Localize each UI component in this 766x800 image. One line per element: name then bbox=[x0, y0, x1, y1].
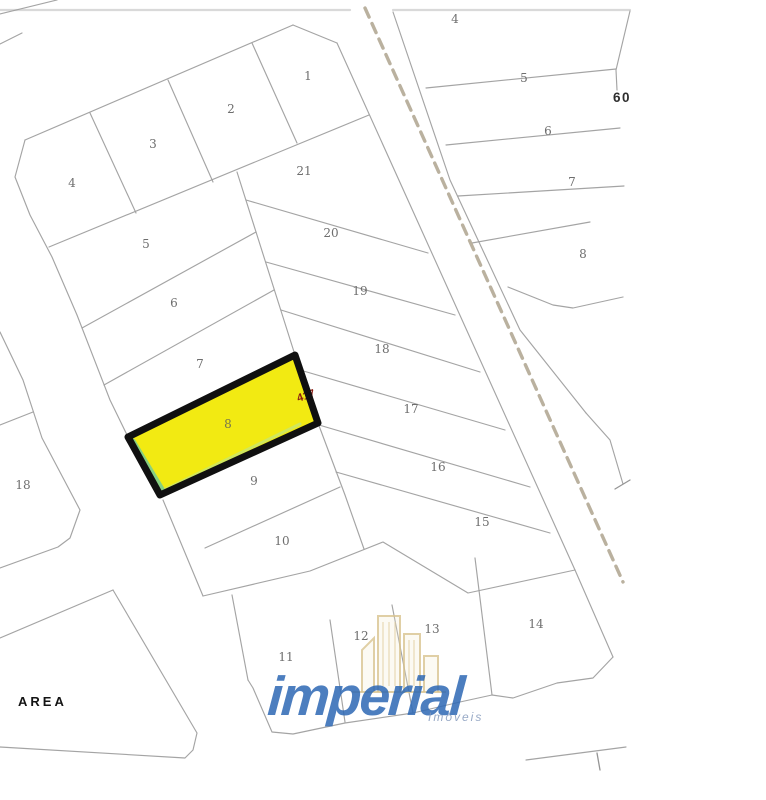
parcel-label-8: 8 bbox=[579, 247, 587, 261]
parcel-label-19: 19 bbox=[352, 284, 367, 298]
parcel-label-7: 7 bbox=[568, 175, 576, 189]
rb-division-7-8 bbox=[472, 222, 590, 243]
division-11-12 bbox=[330, 620, 345, 722]
plat-map-drawing: 4171234215206197188179161015181112131445… bbox=[0, 0, 766, 800]
rb-division-6-7 bbox=[458, 186, 624, 196]
lot11-west-edge bbox=[232, 595, 248, 680]
road-dashed-centerline bbox=[365, 8, 623, 582]
parcel-label-11: 11 bbox=[278, 650, 293, 664]
area-parcel-boundary bbox=[0, 590, 197, 758]
division-3-4 bbox=[90, 113, 136, 213]
parcel-label-18: 18 bbox=[15, 478, 30, 492]
rb-lot8-bottom bbox=[508, 287, 623, 308]
parcel-label-13: 13 bbox=[424, 622, 439, 636]
parcel-label-18: 18 bbox=[374, 342, 389, 356]
division-1-2 bbox=[252, 43, 297, 143]
rb-division-5-6 bbox=[446, 128, 620, 145]
top-row-bottom bbox=[49, 115, 369, 247]
area-label: AREA bbox=[18, 694, 67, 709]
division-6-7 bbox=[104, 290, 274, 385]
parcel-label-4: 4 bbox=[68, 176, 76, 190]
street-edge-lot9 bbox=[163, 500, 203, 596]
block-nw-boundary bbox=[25, 25, 293, 140]
buildings-icon-shape bbox=[362, 638, 374, 692]
road-east-edge bbox=[393, 12, 586, 413]
block-number-label: 60 bbox=[613, 90, 631, 105]
right-block-corner bbox=[586, 413, 623, 484]
area-parcel-nw-edge bbox=[0, 590, 113, 638]
parcel-label-16: 16 bbox=[430, 460, 445, 474]
division-17-16 bbox=[319, 425, 530, 487]
parcel-label-2: 2 bbox=[227, 102, 235, 116]
parcel-label-10: 10 bbox=[274, 534, 289, 548]
lot18-ne-boundary bbox=[0, 332, 80, 568]
parcel-label-3: 3 bbox=[149, 137, 157, 151]
parcel-label-17: 17 bbox=[403, 402, 418, 416]
parcel-label-4: 4 bbox=[451, 12, 459, 26]
bottom-survey-tick bbox=[597, 753, 600, 770]
parcel-label-1: 1 bbox=[304, 69, 312, 83]
parcel-label-7: 7 bbox=[196, 357, 204, 371]
parcel-label-14: 14 bbox=[528, 617, 544, 631]
bottom-survey-line bbox=[526, 747, 626, 760]
buildings-icon-shape bbox=[424, 656, 438, 692]
plat-map: 4171234215206197188179161015181112131445… bbox=[0, 0, 766, 800]
parcel-label-8: 8 bbox=[224, 417, 232, 431]
right-block-east-edge bbox=[616, 11, 630, 90]
corner-line-a bbox=[0, 0, 57, 14]
parcel-label-15: 15 bbox=[474, 515, 489, 529]
parcel-label-6: 6 bbox=[544, 124, 552, 138]
corner-line-b bbox=[0, 33, 22, 44]
parcel-label-20: 20 bbox=[323, 226, 338, 240]
division-13-14 bbox=[475, 558, 492, 695]
division-5-6 bbox=[82, 232, 256, 328]
road-west-edge bbox=[337, 43, 575, 570]
parcel-label-6: 6 bbox=[170, 296, 178, 310]
division-16-15 bbox=[336, 472, 550, 533]
lot18-top-edge bbox=[0, 412, 33, 425]
parcel-label-12: 12 bbox=[353, 629, 368, 643]
block-ne-chamfer bbox=[293, 25, 337, 43]
buildings-icon-shape bbox=[404, 634, 420, 692]
division-19-18 bbox=[281, 310, 480, 372]
parcel-label-5: 5 bbox=[142, 237, 150, 251]
parcel-label-5: 5 bbox=[520, 71, 528, 85]
parcel-label-21: 21 bbox=[296, 164, 311, 178]
division-2-3 bbox=[168, 80, 213, 182]
division-18-17 bbox=[300, 370, 505, 430]
division-9-10 bbox=[205, 487, 340, 548]
parcel-label-9: 9 bbox=[250, 474, 258, 488]
